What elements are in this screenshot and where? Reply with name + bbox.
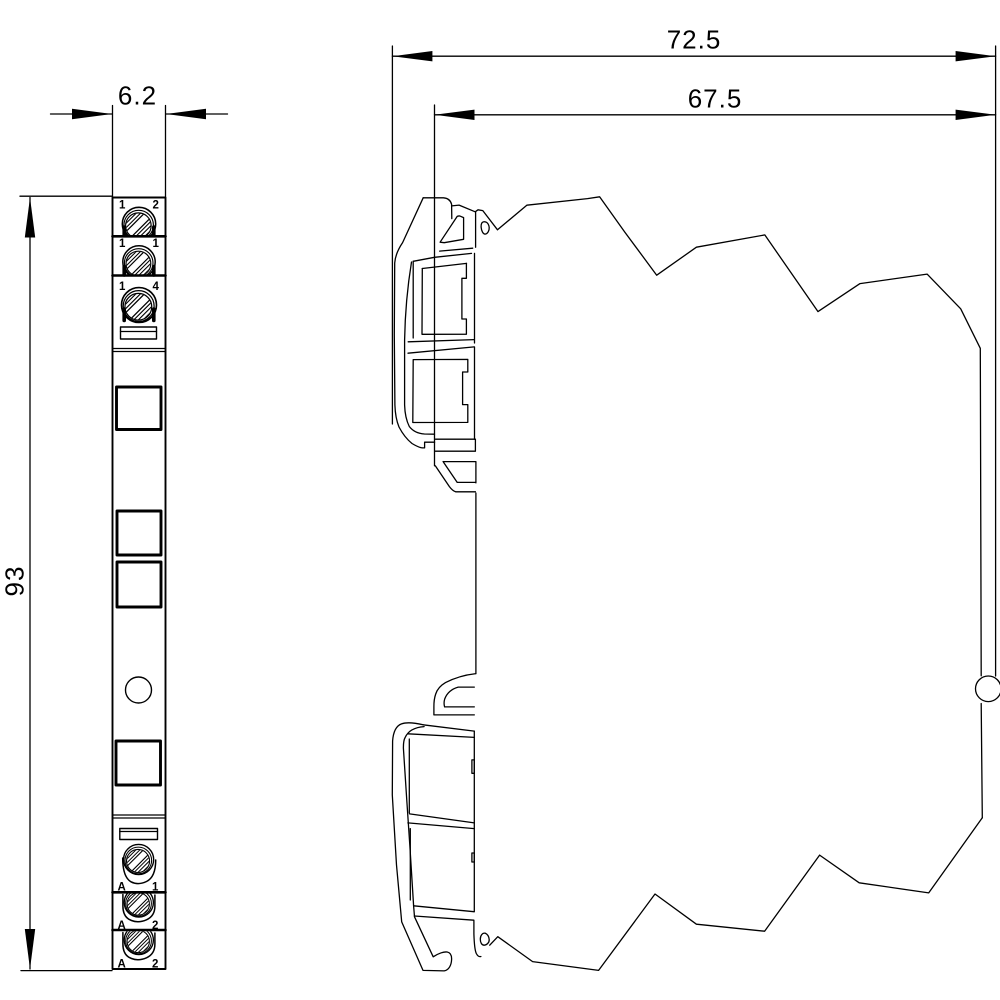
svg-text:1: 1 (119, 238, 126, 250)
svg-text:93: 93 (0, 566, 30, 597)
svg-text:2: 2 (153, 200, 159, 212)
svg-text:67.5: 67.5 (688, 84, 743, 114)
svg-text:6.2: 6.2 (118, 81, 157, 111)
svg-text:2: 2 (152, 959, 158, 971)
svg-text:1: 1 (119, 200, 126, 212)
svg-text:A: A (118, 959, 126, 971)
svg-text:72.5: 72.5 (667, 25, 722, 55)
svg-text:1: 1 (119, 281, 126, 293)
svg-text:1: 1 (153, 238, 160, 250)
svg-text:4: 4 (153, 281, 160, 293)
